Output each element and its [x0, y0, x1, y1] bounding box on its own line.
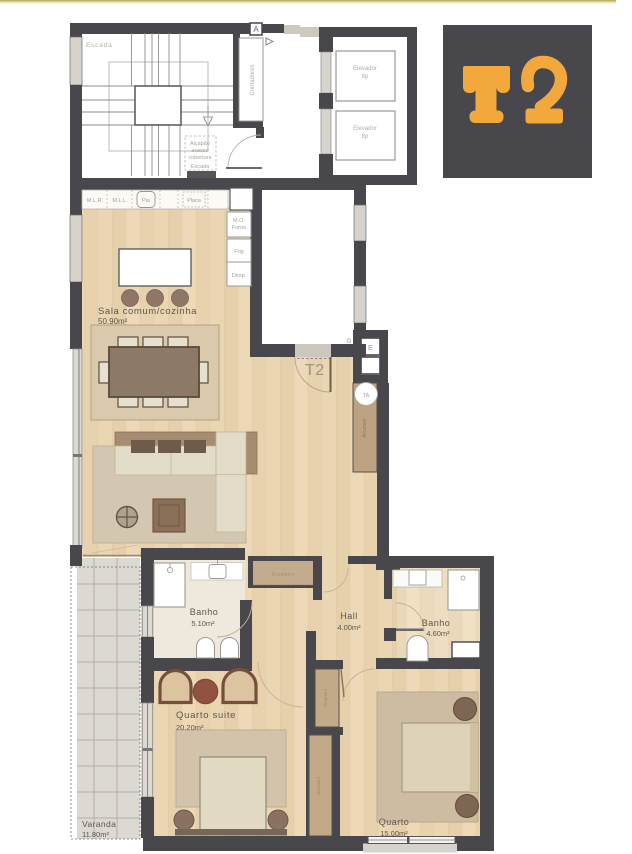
svg-text:8p: 8p: [362, 74, 369, 80]
svg-text:A: A: [253, 25, 259, 34]
svg-text:Escada: Escada: [86, 42, 112, 49]
svg-text:T2: T2: [305, 362, 325, 379]
svg-text:Desp.: Desp.: [232, 273, 247, 279]
svg-text:Quarto: Quarto: [379, 817, 410, 827]
svg-text:Placa: Placa: [187, 198, 202, 204]
svg-text:11.80m²: 11.80m²: [82, 830, 109, 839]
svg-text:Alçapão: Alçapão: [190, 141, 210, 147]
svg-text:Elevador: Elevador: [353, 126, 377, 132]
svg-text:Banho: Banho: [190, 607, 219, 617]
svg-text:Arrumos: Arrumos: [362, 418, 368, 437]
svg-text:M.L.L.: M.L.L.: [112, 198, 128, 204]
svg-text:E: E: [368, 343, 373, 352]
svg-text:Elevador: Elevador: [353, 66, 377, 72]
svg-text:20.20m²: 20.20m²: [176, 723, 204, 732]
svg-text:15.00m²: 15.00m²: [380, 829, 408, 838]
svg-text:M.L.R.: M.L.R.: [87, 198, 104, 204]
svg-text:Escada: Escada: [191, 164, 210, 170]
svg-text:Roupeiro: Roupeiro: [272, 572, 294, 578]
svg-text:Banho: Banho: [422, 618, 451, 628]
svg-text:Contadores: Contadores: [250, 64, 256, 95]
svg-text:Hall: Hall: [340, 611, 358, 621]
svg-text:Pia: Pia: [142, 198, 151, 204]
svg-text:Quarto suite: Quarto suite: [176, 710, 236, 721]
svg-text:Forno: Forno: [232, 225, 246, 231]
svg-text:Frig: Frig: [234, 249, 243, 255]
svg-text:4.60m²: 4.60m²: [426, 629, 450, 638]
svg-text:Roupeiro: Roupeiro: [323, 688, 328, 707]
svg-text:8p: 8p: [362, 134, 369, 140]
svg-text:TA: TA: [363, 393, 370, 399]
svg-text:5.10m²: 5.10m²: [191, 619, 215, 628]
svg-text:Varanda: Varanda: [82, 819, 116, 829]
svg-text:Sala comum/cozinha: Sala comum/cozinha: [98, 306, 197, 317]
svg-text:cobertura: cobertura: [188, 155, 212, 161]
svg-text:M.O.: M.O.: [233, 218, 245, 224]
svg-text:acesso: acesso: [191, 148, 208, 154]
svg-text:D: D: [347, 339, 352, 345]
svg-text:Roupeiro: Roupeiro: [316, 776, 321, 795]
svg-text:4.00m²: 4.00m²: [337, 623, 361, 632]
